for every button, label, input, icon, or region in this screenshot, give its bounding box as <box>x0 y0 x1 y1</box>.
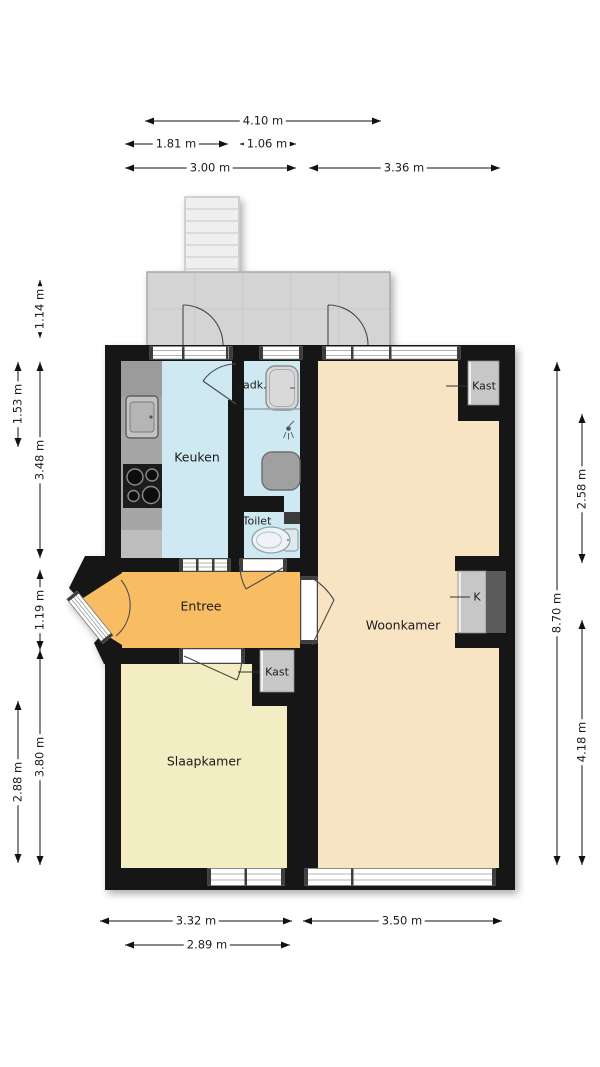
opening-keuken-entree <box>180 559 230 571</box>
kast-k <box>458 571 486 633</box>
kast-woonkamer <box>468 361 499 405</box>
cooktop <box>123 464 162 508</box>
floorplan-page: Keuken Badk. Toilet Entree Woonkamer Sla… <box>0 0 600 1067</box>
window-keuken <box>150 347 232 360</box>
window-slaapkamer <box>208 869 284 886</box>
kast-slaapkamer <box>260 650 294 692</box>
building <box>67 197 515 890</box>
opening-slaapkamer <box>180 649 244 663</box>
kast-k-dark <box>486 571 506 633</box>
toilet-bowl <box>252 527 298 553</box>
window-woonkamer-onder <box>305 869 495 886</box>
boiler <box>262 452 300 490</box>
opening-woonkamer <box>301 577 317 643</box>
window-woonkamer-boven <box>323 347 460 360</box>
window-badkamer <box>260 347 302 360</box>
floorplan-drawing <box>0 0 600 1067</box>
room-entree <box>121 572 300 648</box>
staircase <box>185 197 239 282</box>
opening-toilet <box>240 559 286 571</box>
kitchen-counter <box>121 361 162 558</box>
